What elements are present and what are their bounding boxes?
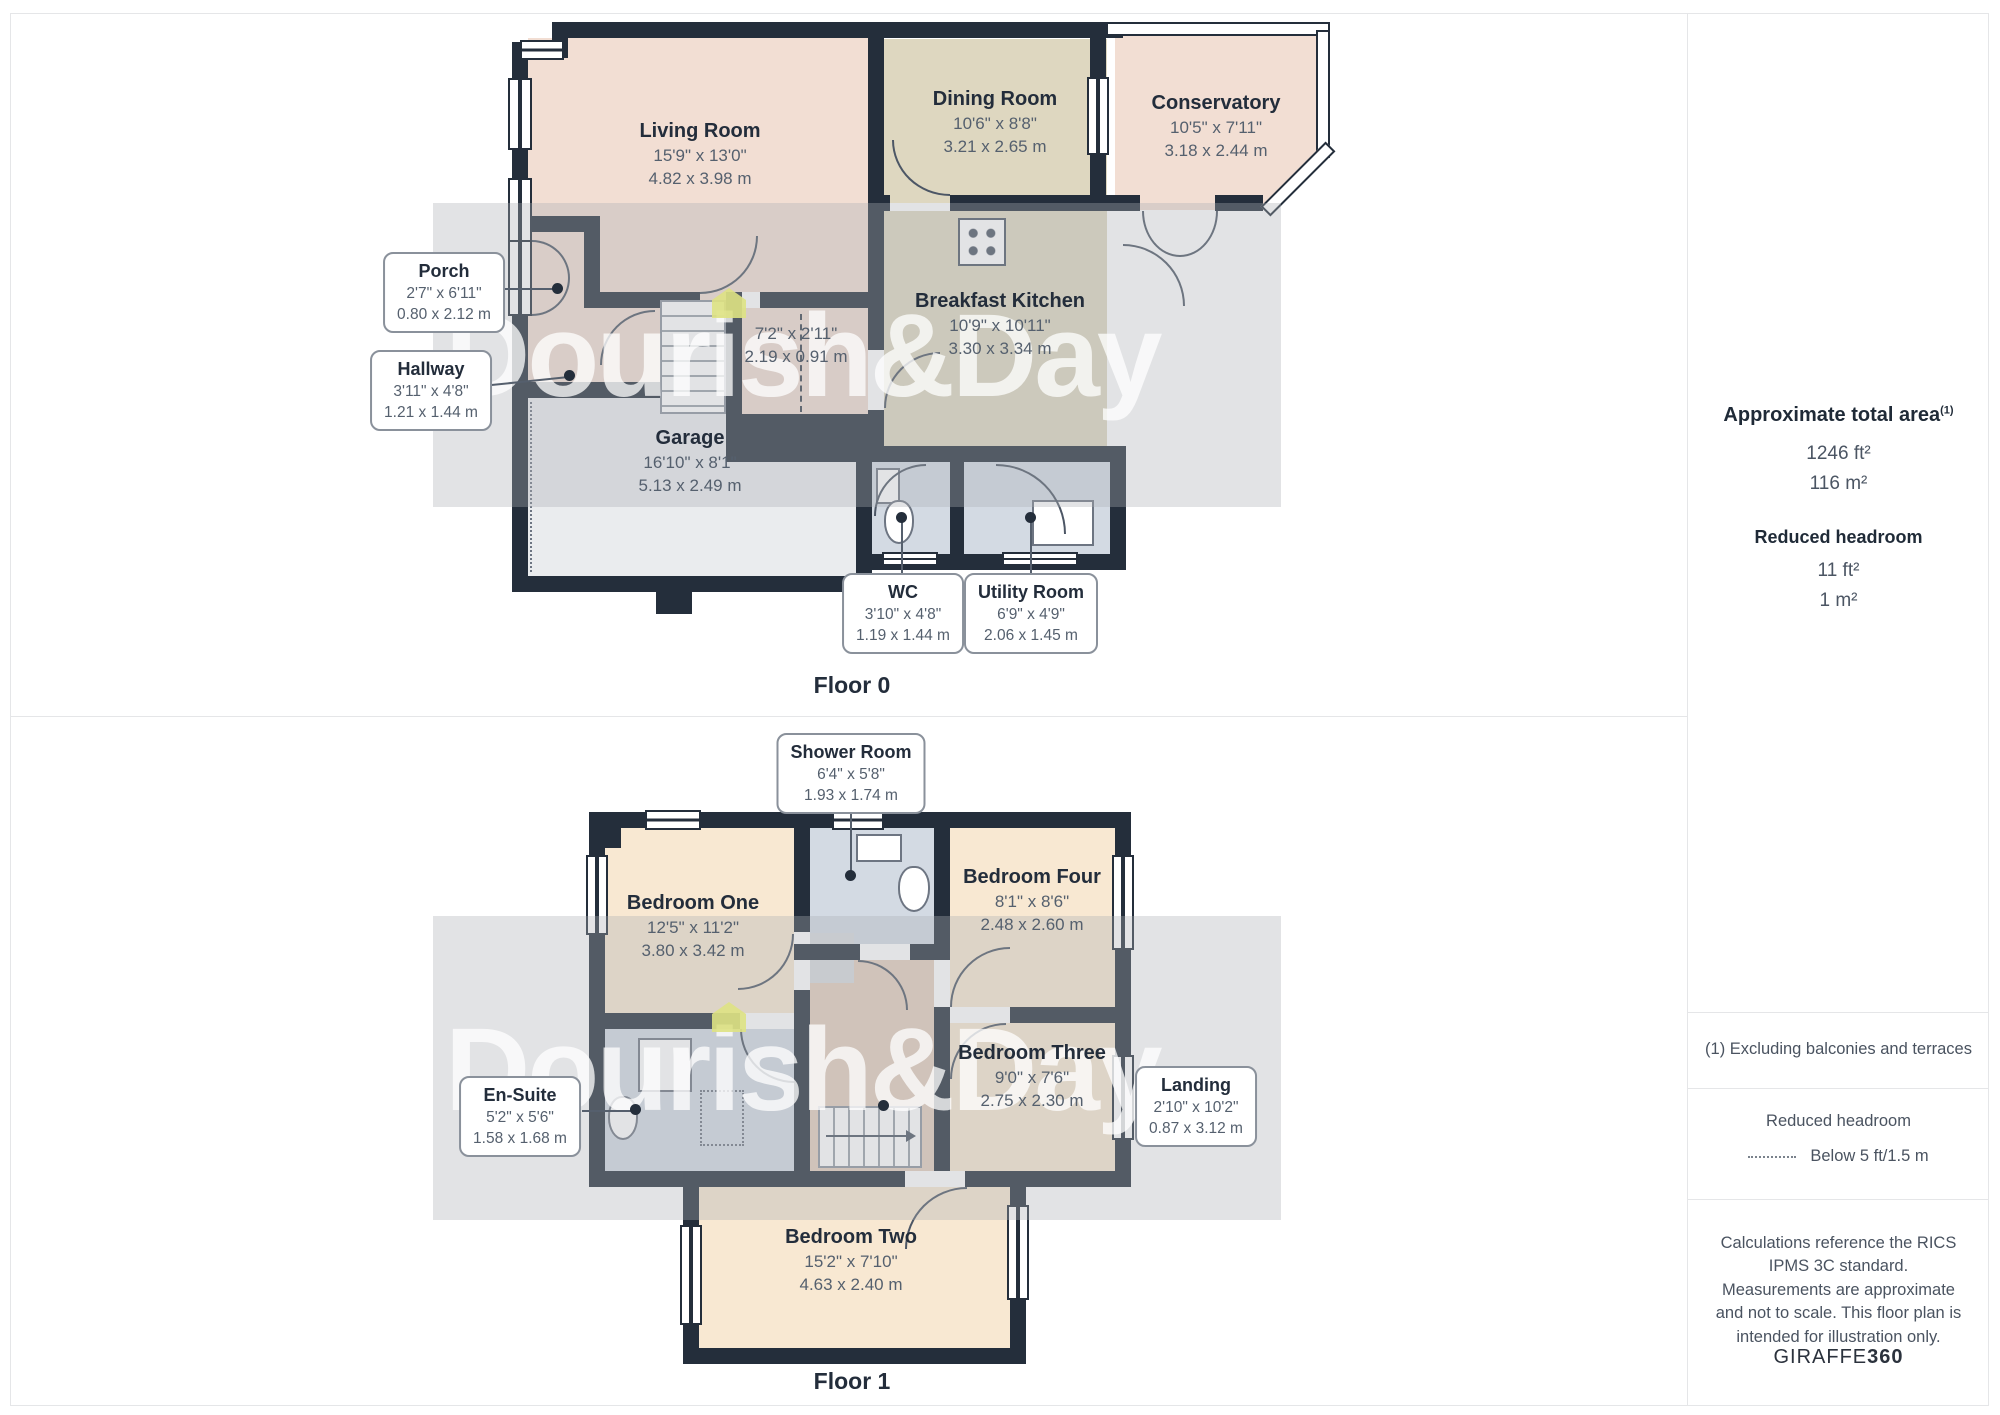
reduced-headroom-ft: 11 ft²: [1688, 556, 1989, 586]
floorplan-page: { "watermark": { "text": "Dourish&Day" }…: [0, 0, 2000, 1415]
window: [1087, 77, 1109, 155]
room-tag-en-suite: En-Suite 5'2" x 5'6" 1.58 x 1.68 m: [459, 1076, 581, 1157]
total-area-ft: 1246 ft²: [1688, 439, 1989, 469]
label-dot: [878, 1100, 889, 1111]
room-label-bedroom-one: Bedroom One 12'5" x 11'2" 3.80 x 3.42 m: [627, 890, 759, 962]
room-label-bedroom-two: Bedroom Two 15'2" x 7'10" 4.63 x 2.40 m: [785, 1224, 917, 1296]
footnote-marker: (1): [1940, 404, 1953, 416]
sidebar-section-divider: [1688, 1088, 1989, 1089]
sidebar-section-divider: [1688, 1012, 1989, 1013]
window: [1002, 552, 1078, 566]
label-dot: [552, 283, 563, 294]
window: [882, 552, 938, 566]
window: [508, 78, 532, 150]
floor1-label: Floor 1: [814, 1368, 891, 1395]
room-label-garage: Garage 16'10" x 8'1" 5.13 x 2.49 m: [638, 425, 741, 497]
sidebar-divider: [1687, 13, 1688, 1406]
wall-segment: [794, 812, 810, 932]
room-label-living: Living Room 15'9" x 13'0" 4.82 x 3.98 m: [639, 118, 760, 190]
disclaimer-text: Calculations reference the RICS IPMS 3C …: [1712, 1232, 1965, 1349]
label-dot: [564, 370, 575, 381]
wall-segment: [890, 22, 1123, 38]
window: [645, 810, 701, 830]
wall-segment: [683, 1348, 1026, 1364]
label-dot: [1025, 512, 1036, 523]
wall-segment: [512, 576, 668, 592]
area-footnote: (1) Excluding balconies and terraces: [1700, 1040, 1977, 1059]
legend-title: Reduced headroom: [1688, 1112, 1989, 1131]
legend-row: Below 5 ft/1.5 m: [1688, 1147, 1989, 1166]
total-area-block: Approximate total area(1) 1246 ft² 116 m…: [1688, 404, 1989, 616]
room-label-bedroom-three: Bedroom Three 9'0" x 7'6" 2.75 x 2.30 m: [958, 1040, 1106, 1112]
window: [680, 1225, 702, 1325]
wall-segment: [1090, 22, 1106, 77]
room-tag-utility: Utility Room 6'9" x 4'9" 2.06 x 1.45 m: [964, 573, 1098, 654]
room-tag-shower-room: Shower Room 6'4" x 5'8" 1.93 x 1.74 m: [776, 733, 925, 814]
legend-item: Below 5 ft/1.5 m: [1810, 1147, 1928, 1166]
room-tag-porch: Porch 2'7" x 6'11" 0.80 x 2.12 m: [383, 252, 505, 333]
room-label-inner-hall: 7'2" x 2'11" 2.19 x 0.91 m: [744, 322, 847, 368]
room-tag-hallway: Hallway 3'11" x 4'8" 1.21 x 1.44 m: [370, 350, 492, 431]
reduced-headroom-title: Reduced headroom: [1688, 527, 1989, 548]
toilet-icon: [898, 866, 930, 912]
room-label-dining: Dining Room 10'6" x 8'8" 3.21 x 2.65 m: [933, 86, 1057, 158]
room-label-conservatory: Conservatory 10'5" x 7'11" 3.18 x 2.44 m: [1152, 90, 1281, 162]
sidebar-section-divider: [1688, 1199, 1989, 1200]
total-area-m: 116 m²: [1688, 469, 1989, 499]
giraffe360-logo: GIRAFFE360: [1688, 1346, 1989, 1369]
label-dot: [630, 1104, 641, 1115]
label-connector: [901, 520, 903, 573]
legend-block: Reduced headroom Below 5 ft/1.5 m: [1688, 1112, 1989, 1166]
sink-icon: [856, 834, 902, 862]
conservatory-glazed-wall: [1106, 22, 1330, 36]
label-dot: [845, 870, 856, 881]
floor0-label: Floor 0: [814, 672, 891, 699]
wall-segment: [552, 22, 890, 38]
total-area-title: Approximate total area(1): [1688, 404, 1989, 427]
label-connector: [1030, 520, 1032, 573]
label-connector: [505, 288, 557, 290]
floor-section-divider: [10, 716, 1688, 717]
label-connector: [582, 1110, 636, 1112]
label-dot: [896, 512, 907, 523]
room-tag-wc: WC 3'10" x 4'8" 1.19 x 1.44 m: [842, 573, 964, 654]
room-label-bedroom-four: Bedroom Four 8'1" x 8'6" 2.48 x 2.60 m: [963, 864, 1101, 936]
conservatory-glazed-wall: [1316, 30, 1330, 158]
room-label-kitchen: Breakfast Kitchen 10'9" x 10'11" 3.30 x …: [915, 288, 1085, 360]
window: [520, 40, 564, 60]
dashed-line-icon: [1748, 1156, 1796, 1158]
reduced-headroom-m: 1 m²: [1688, 586, 1989, 616]
room-tag-landing: Landing 2'10" x 10'2" 0.87 x 3.12 m: [1135, 1066, 1257, 1147]
